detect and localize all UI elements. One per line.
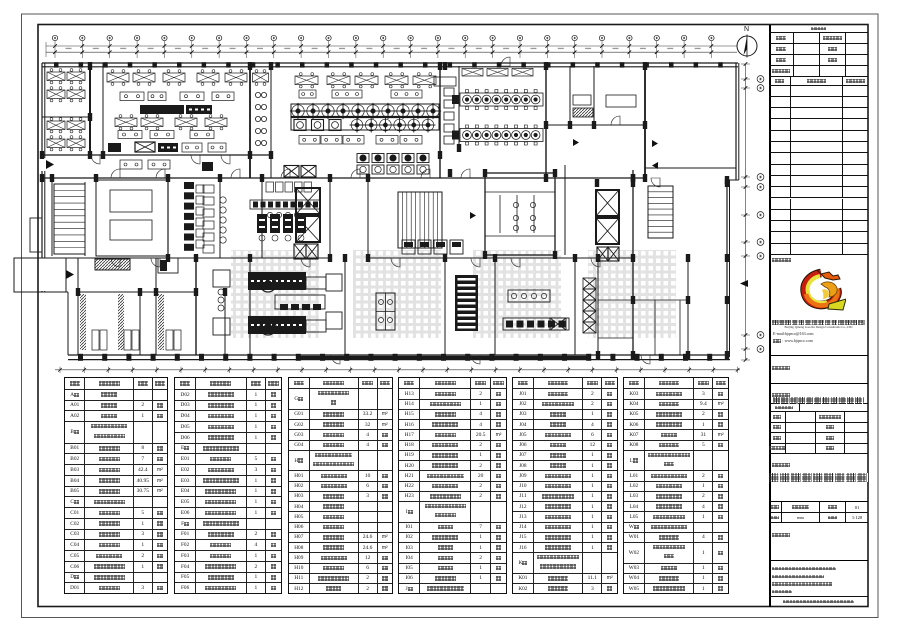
svg-text:N: N	[744, 26, 749, 33]
